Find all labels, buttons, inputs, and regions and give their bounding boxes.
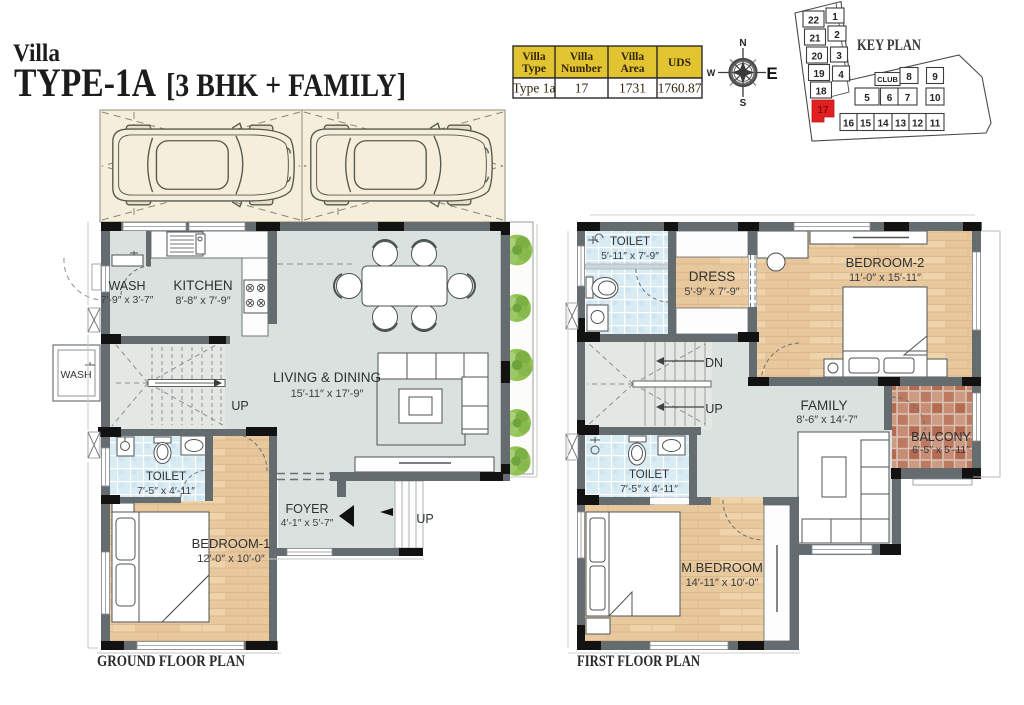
svg-text:6′-5″ x 5′-11″: 6′-5″ x 5′-11″ — [912, 444, 970, 456]
svg-text:11′-0″ x 15′-11″: 11′-0″ x 15′-11″ — [849, 272, 921, 284]
svg-text:5: 5 — [864, 93, 870, 104]
svg-text:16: 16 — [843, 119, 855, 130]
svg-text:FAMILY: FAMILY — [800, 398, 847, 413]
svg-text:WASH: WASH — [60, 369, 91, 381]
svg-text:FOYER: FOYER — [285, 502, 328, 516]
svg-text:UP: UP — [231, 399, 248, 413]
svg-text:VillaArea: VillaArea — [620, 51, 644, 75]
svg-text:BEDROOM-1: BEDROOM-1 — [192, 536, 271, 551]
svg-text:DN: DN — [705, 356, 723, 370]
svg-text:KITCHEN: KITCHEN — [173, 278, 232, 293]
svg-text:LIVING & DINING: LIVING & DINING — [273, 370, 381, 385]
svg-text:W: W — [707, 68, 716, 78]
svg-text:15: 15 — [860, 119, 872, 130]
svg-text:5′-11″ x 7′-9″: 5′-11″ x 7′-9″ — [601, 250, 659, 262]
svg-text:KEY PLAN: KEY PLAN — [857, 37, 921, 54]
svg-text:8′-6″ x 14′-7″: 8′-6″ x 14′-7″ — [796, 414, 858, 426]
svg-text:N: N — [739, 38, 746, 49]
svg-text:DRESS: DRESS — [689, 269, 736, 284]
svg-text:E: E — [766, 64, 777, 83]
svg-text:11: 11 — [930, 119, 941, 130]
svg-text:Type 1a: Type 1a — [513, 81, 556, 96]
svg-text:20: 20 — [811, 52, 823, 63]
svg-text:VillaType: VillaType — [522, 51, 546, 75]
svg-text:14: 14 — [877, 119, 889, 130]
svg-text:CLUB: CLUB — [877, 75, 898, 84]
svg-text:19: 19 — [813, 69, 825, 80]
svg-text:1760.87: 1760.87 — [658, 81, 702, 96]
svg-text:1: 1 — [832, 12, 838, 23]
svg-text:3: 3 — [836, 51, 842, 62]
svg-text:4: 4 — [838, 70, 844, 81]
svg-text:UP: UP — [416, 512, 433, 526]
svg-text:12′-0″ x 10′-0″: 12′-0″ x 10′-0″ — [197, 553, 265, 565]
svg-text:1731: 1731 — [619, 81, 646, 96]
svg-text:8: 8 — [906, 72, 912, 83]
svg-text:8′-8″ x 7′-9″: 8′-8″ x 7′-9″ — [175, 295, 230, 307]
svg-text:9: 9 — [932, 72, 938, 83]
svg-text:17: 17 — [575, 81, 589, 96]
svg-text:4′-1″ x 5′-7″: 4′-1″ x 5′-7″ — [281, 517, 334, 529]
svg-text:15′-11″ x 17′-9″: 15′-11″ x 17′-9″ — [291, 388, 364, 400]
svg-text:17: 17 — [817, 105, 829, 116]
svg-text:BALCONY: BALCONY — [911, 430, 971, 444]
svg-text:7′-5″ x 4′-11″: 7′-5″ x 4′-11″ — [137, 485, 195, 497]
svg-text:5′-9″ x 7′-9″: 5′-9″ x 7′-9″ — [684, 286, 739, 298]
svg-text:UP: UP — [705, 402, 722, 416]
svg-text:18: 18 — [815, 87, 827, 98]
svg-text:GROUND FLOOR PLAN: GROUND FLOOR PLAN — [97, 653, 245, 670]
svg-text:6: 6 — [887, 93, 893, 104]
svg-text:TOILET: TOILET — [629, 469, 669, 481]
svg-text:7: 7 — [905, 93, 911, 104]
svg-text:12: 12 — [912, 119, 924, 130]
svg-text:10: 10 — [929, 93, 941, 104]
svg-text:7′-9″ x 3′-7″: 7′-9″ x 3′-7″ — [101, 294, 154, 306]
svg-text:2: 2 — [834, 30, 840, 41]
svg-text:TOILET: TOILET — [610, 236, 650, 248]
svg-text:WASH: WASH — [108, 279, 145, 293]
svg-text:7′-5″ x 4′-11″: 7′-5″ x 4′-11″ — [620, 483, 678, 495]
svg-text:BEDROOM-2: BEDROOM-2 — [846, 255, 925, 270]
svg-text:UDS: UDS — [668, 57, 691, 69]
svg-text:21: 21 — [809, 34, 821, 45]
svg-text:M.BEDROOM: M.BEDROOM — [681, 560, 763, 575]
svg-text:14′-11″ x 10′-0″: 14′-11″ x 10′-0″ — [686, 577, 759, 589]
svg-text:TOILET: TOILET — [146, 471, 186, 483]
svg-text:13: 13 — [895, 119, 907, 130]
svg-text:FIRST FLOOR PLAN: FIRST FLOOR PLAN — [577, 653, 700, 670]
svg-text:22: 22 — [808, 16, 820, 27]
svg-text:S: S — [740, 98, 747, 109]
